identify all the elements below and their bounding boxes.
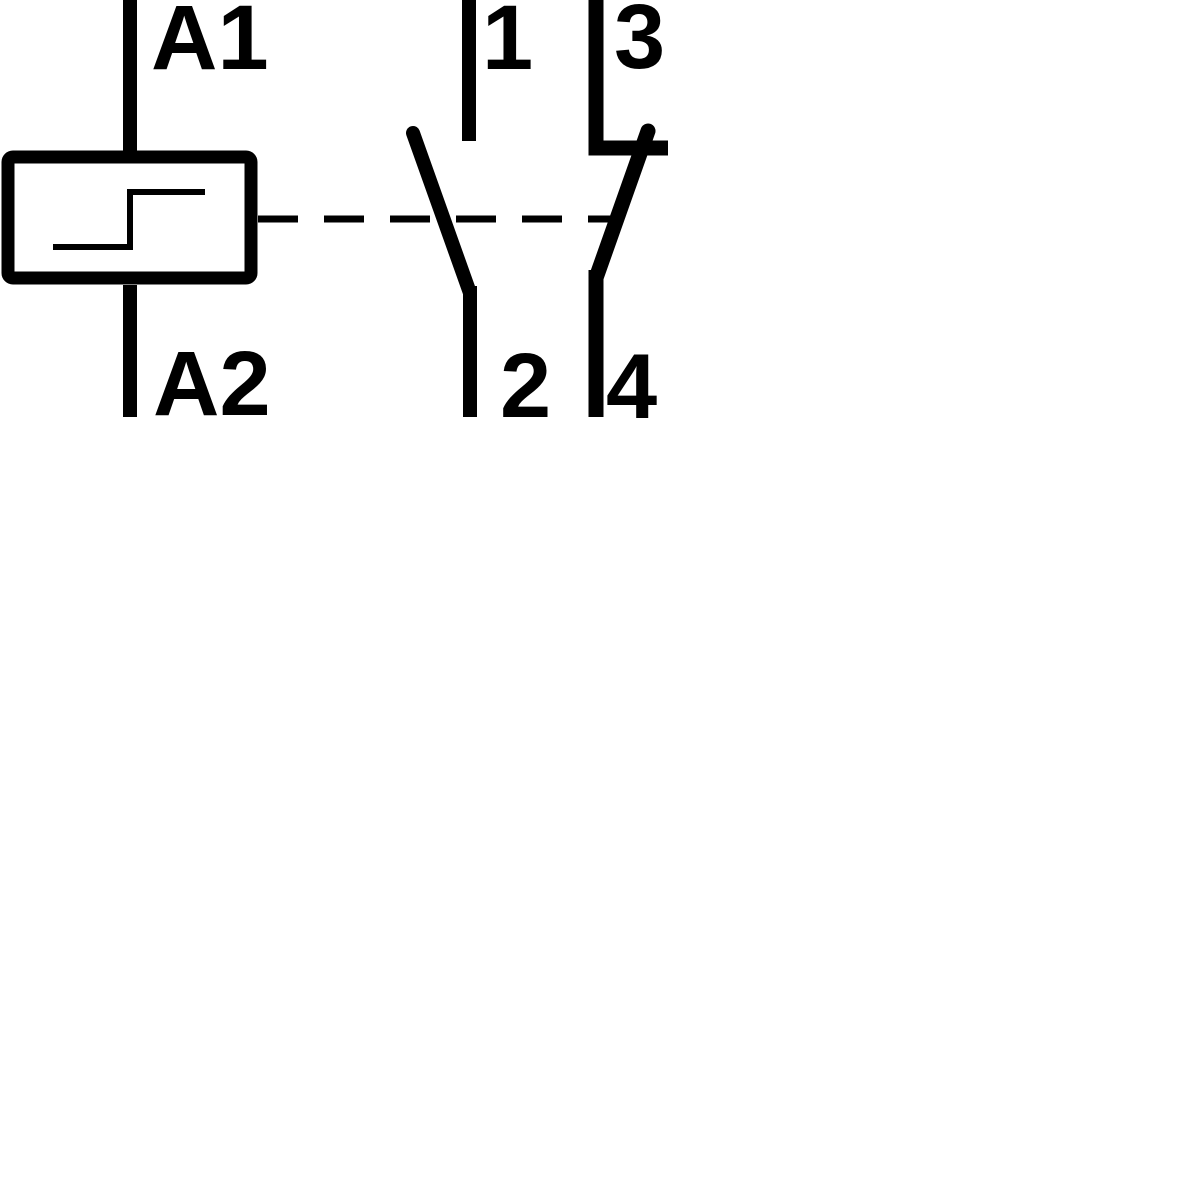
wiring-diagram: A1 A2 1 2 3 4 — [0, 0, 1200, 1200]
terminal-label-4: 4 — [606, 336, 657, 438]
terminal-label-1: 1 — [482, 0, 533, 89]
diagram-background — [0, 0, 1200, 1200]
terminal-label-a2: A2 — [153, 333, 271, 435]
terminal-label-a1: A1 — [151, 0, 269, 89]
terminal-label-2: 2 — [500, 335, 551, 437]
schematic-page: A1 A2 1 2 3 4 — [0, 0, 1200, 1200]
terminal-label-3: 3 — [614, 0, 665, 88]
